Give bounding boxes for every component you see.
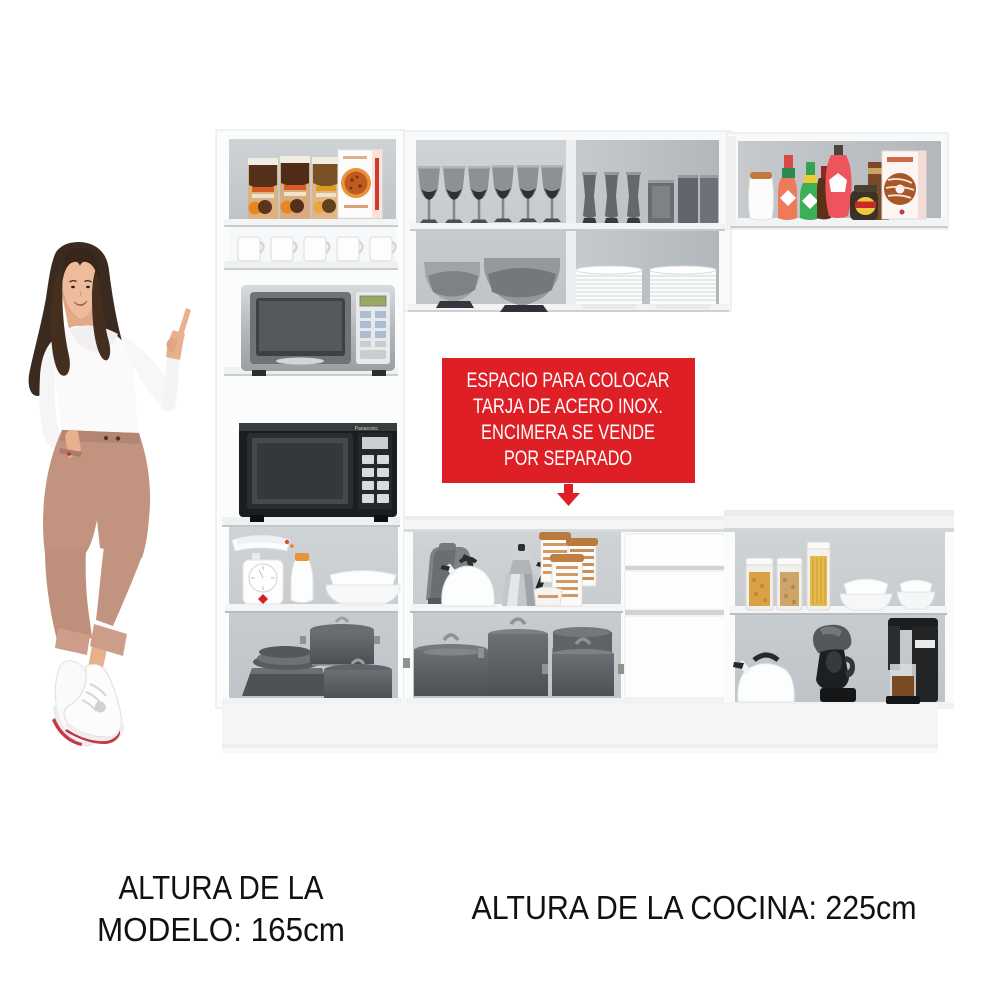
svg-text:Panasonic: Panasonic (355, 426, 379, 432)
svg-text:ENCIMERA SE VENDE: ENCIMERA SE VENDE (481, 421, 655, 444)
svg-text:POR SEPARADO: POR SEPARADO (504, 447, 632, 470)
svg-text:MODELO: 165cm: MODELO: 165cm (97, 911, 345, 948)
svg-text:ESPACIO PARA COLOCAR: ESPACIO PARA COLOCAR (467, 369, 670, 392)
svg-text:ALTURA DE LA COCINA: 225cm: ALTURA DE LA COCINA: 225cm (472, 889, 917, 926)
svg-text:ALTURA DE LA: ALTURA DE LA (119, 869, 324, 906)
svg-text:TARJA DE ACERO INOX.: TARJA DE ACERO INOX. (473, 395, 663, 418)
